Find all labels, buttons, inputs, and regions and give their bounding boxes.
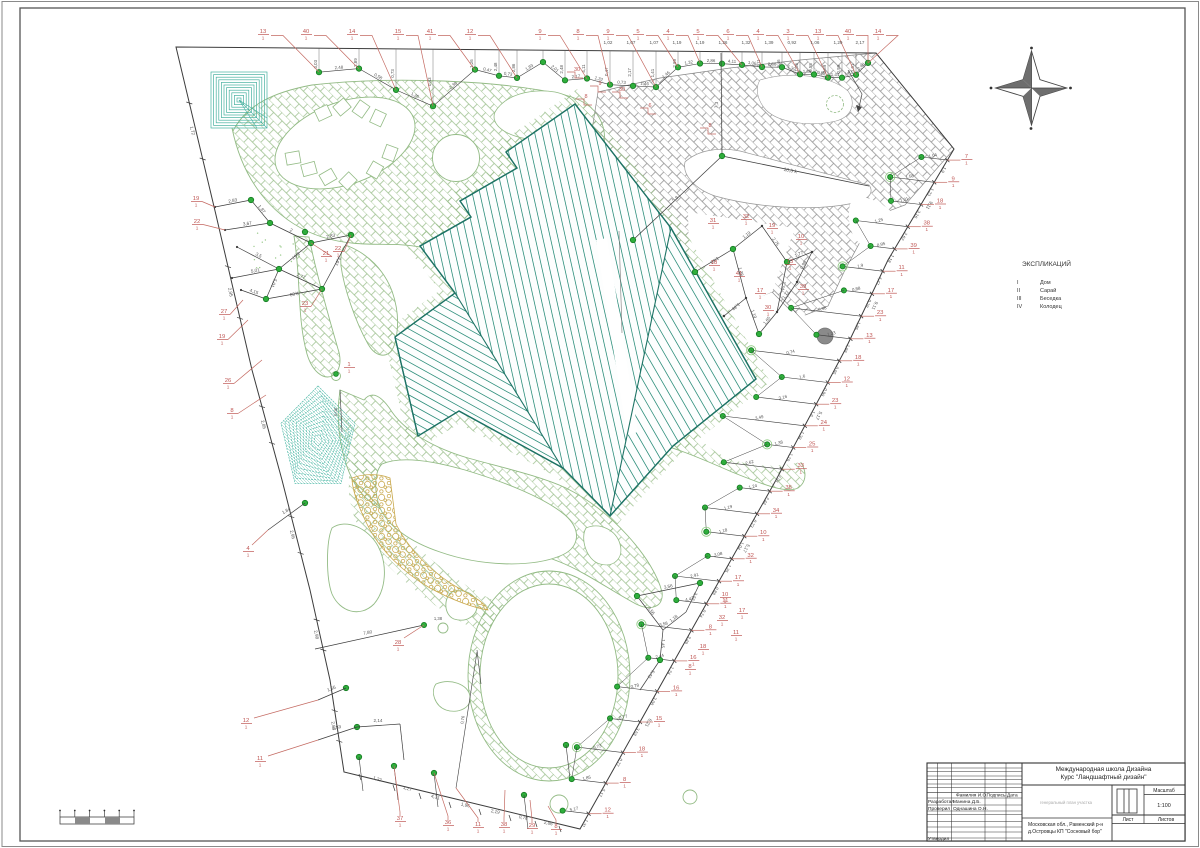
svg-text:Разработал: Разработал [928, 799, 954, 805]
svg-text:1: 1 [429, 36, 432, 41]
svg-text:1,39: 1,39 [803, 69, 812, 74]
svg-text:1: 1 [469, 36, 472, 41]
svg-text:Колодец: Колодец [1040, 304, 1063, 310]
svg-text:1: 1 [337, 253, 340, 258]
svg-text:1: 1 [709, 631, 712, 636]
svg-text:34: 34 [773, 508, 780, 514]
svg-text:12: 12 [243, 718, 250, 724]
svg-text:1: 1 [877, 36, 880, 41]
svg-text:19: 19 [219, 334, 226, 340]
svg-text:4,11: 4,11 [581, 64, 586, 73]
svg-text:24: 24 [821, 420, 828, 426]
svg-text:1: 1 [879, 317, 882, 322]
svg-text:1: 1 [667, 36, 670, 41]
svg-text:1: 1 [890, 294, 893, 299]
svg-text:ЭКСПЛИКАЦИЙ: ЭКСПЛИКАЦИЙ [1022, 259, 1071, 268]
svg-text:31: 31 [710, 218, 717, 224]
svg-text:1,41: 1,41 [831, 72, 840, 77]
svg-text:6,08: 6,08 [333, 407, 339, 416]
svg-text:Курс "Ландшафтный дизайн": Курс "Ландшафтный дизайн" [1061, 773, 1147, 781]
svg-text:25: 25 [809, 442, 816, 448]
svg-text:22: 22 [194, 219, 201, 225]
svg-text:1: 1 [223, 316, 226, 321]
svg-text:7: 7 [965, 154, 968, 160]
svg-text:1,06: 1,06 [748, 60, 758, 66]
svg-text:12: 12 [604, 808, 611, 814]
svg-text:0,73: 0,73 [390, 69, 395, 78]
svg-text:1: 1 [847, 36, 850, 41]
svg-text:1: 1 [397, 36, 400, 41]
svg-text:1: 1 [195, 203, 198, 208]
svg-text:Масштаб: Масштаб [1153, 788, 1175, 794]
svg-text:32: 32 [719, 615, 726, 621]
svg-text:14: 14 [349, 29, 356, 35]
svg-text:15: 15 [395, 29, 402, 35]
svg-text:2,17: 2,17 [627, 68, 632, 77]
svg-text:Дом: Дом [1040, 280, 1051, 286]
svg-text:1: 1 [227, 385, 230, 390]
svg-text:38: 38 [924, 221, 931, 227]
svg-text:18: 18 [711, 260, 718, 266]
svg-text:10: 10 [798, 234, 805, 240]
svg-text:Подпись: Подпись [987, 793, 1006, 799]
svg-text:1: 1 [721, 622, 724, 627]
svg-text:1,32: 1,32 [742, 40, 751, 45]
svg-text:9: 9 [952, 176, 955, 182]
svg-text:1: 1 [447, 827, 450, 832]
svg-text:Однашина О.Н.: Однашина О.Н. [953, 806, 988, 812]
svg-text:1: 1 [787, 492, 790, 497]
svg-text:11: 11 [733, 630, 739, 636]
svg-text:1: 1 [749, 559, 752, 564]
svg-text:2,17: 2,17 [571, 74, 580, 80]
svg-text:35: 35 [785, 485, 792, 491]
svg-text:2,17: 2,17 [856, 40, 865, 45]
svg-text:10: 10 [722, 592, 729, 598]
svg-text:1: 1 [245, 725, 248, 730]
svg-text:2,14: 2,14 [374, 718, 383, 723]
svg-text:41: 41 [427, 29, 434, 35]
svg-text:1,38: 1,38 [434, 616, 443, 621]
svg-text:1: 1 [399, 823, 402, 828]
svg-text:1: 1 [555, 831, 558, 836]
svg-text:1: 1 [757, 36, 760, 41]
svg-text:17: 17 [739, 608, 746, 614]
svg-text:30: 30 [574, 67, 580, 73]
svg-text:1,07: 1,07 [627, 40, 636, 45]
svg-text:Листов: Листов [1158, 817, 1175, 823]
svg-text:18: 18 [639, 747, 646, 753]
svg-text:III: III [1017, 296, 1022, 302]
svg-text:9: 9 [606, 29, 609, 35]
svg-text:1: 1 [477, 829, 480, 834]
svg-text:29: 29 [529, 823, 536, 829]
svg-text:1: 1 [692, 661, 695, 666]
svg-text:37: 37 [397, 816, 404, 822]
svg-text:Фамилия И.О.: Фамилия И.О. [956, 793, 988, 799]
svg-text:16: 16 [690, 655, 697, 661]
svg-text:1: 1 [577, 36, 580, 41]
svg-text:10: 10 [760, 530, 767, 536]
svg-text:28: 28 [395, 640, 402, 646]
svg-text:1: 1 [926, 227, 929, 232]
svg-text:1,26: 1,26 [719, 40, 728, 45]
svg-text:2,86: 2,86 [768, 62, 777, 67]
svg-text:8: 8 [584, 94, 587, 100]
svg-text:1: 1 [351, 36, 354, 41]
svg-text:0,73: 0,73 [617, 80, 626, 85]
svg-text:40: 40 [303, 29, 310, 35]
svg-text:1: 1 [767, 312, 770, 317]
svg-text:17: 17 [735, 575, 742, 581]
svg-text:19: 19 [193, 196, 200, 202]
svg-text:6: 6 [648, 103, 651, 109]
svg-text:1: 1 [912, 249, 915, 254]
svg-text:11: 11 [257, 756, 263, 762]
svg-text:13: 13 [787, 259, 794, 265]
svg-text:1: 1 [965, 161, 968, 166]
svg-text:Беседка: Беседка [1040, 296, 1062, 302]
svg-text:1: 1 [231, 415, 234, 420]
svg-text:1: 1 [759, 295, 762, 300]
svg-text:1: 1 [397, 647, 400, 652]
svg-text:27: 27 [221, 309, 228, 315]
svg-text:1,41: 1,41 [650, 68, 655, 77]
svg-text:17: 17 [888, 288, 895, 294]
svg-text:9: 9 [538, 29, 541, 35]
svg-text:1: 1 [262, 36, 265, 41]
svg-text:1: 1 [771, 230, 774, 235]
svg-text:1: 1 [606, 814, 609, 819]
svg-text:30: 30 [619, 87, 625, 93]
svg-text:1: 1 [712, 225, 715, 230]
svg-text:1: 1 [811, 448, 814, 453]
svg-text:1: 1 [325, 258, 328, 263]
svg-text:2,86: 2,86 [707, 58, 716, 63]
svg-text:1: 1 [834, 405, 837, 410]
svg-text:1: 1 [900, 272, 903, 277]
svg-text:1: 1 [846, 383, 849, 388]
svg-text:38: 38 [501, 822, 508, 828]
svg-text:1,39: 1,39 [765, 40, 774, 45]
svg-text:1: 1 [735, 637, 738, 642]
svg-text:Сарай: Сарай [1040, 287, 1056, 294]
svg-text:4,11: 4,11 [728, 59, 737, 65]
svg-text:1: 1 [247, 553, 250, 558]
svg-text:1,07: 1,07 [650, 40, 659, 45]
svg-text:1: 1 [939, 205, 942, 210]
svg-text:1,19: 1,19 [673, 40, 682, 45]
svg-text:1: 1 [738, 278, 741, 283]
svg-text:1: 1 [503, 829, 506, 834]
svg-text:1: 1 [762, 537, 765, 542]
svg-text:1,06: 1,06 [811, 40, 820, 45]
svg-text:Манина Д.Б.: Манина Д.Б. [953, 799, 981, 805]
svg-text:15: 15 [656, 716, 663, 722]
svg-text:1: 1 [304, 308, 307, 313]
svg-text:Утвердил: Утвердил [928, 836, 949, 842]
svg-text:7,3: 7,3 [714, 101, 719, 108]
svg-text:1: 1 [702, 651, 705, 656]
svg-text:1: 1 [737, 582, 740, 587]
svg-text:1: 1 [347, 362, 350, 368]
svg-text:12: 12 [844, 377, 851, 383]
svg-text:1: 1 [637, 36, 640, 41]
svg-text:1: 1 [658, 723, 661, 728]
svg-text:30: 30 [765, 305, 772, 311]
svg-text:1: 1 [348, 369, 351, 374]
svg-text:1: 1 [802, 291, 805, 296]
svg-text:1: 1 [789, 266, 792, 271]
svg-text:32: 32 [743, 214, 750, 220]
svg-text:14: 14 [875, 29, 882, 35]
svg-text:11: 11 [475, 822, 481, 828]
svg-text:1,02: 1,02 [604, 40, 613, 45]
svg-text:23: 23 [877, 310, 884, 316]
svg-text:1,29: 1,29 [834, 40, 843, 45]
svg-text:1: 1 [745, 221, 748, 226]
svg-text:41: 41 [736, 271, 743, 277]
svg-text:генеральный план участка: генеральный план участка [1040, 800, 1093, 805]
svg-text:26: 26 [225, 378, 232, 384]
svg-text:1: 1 [259, 763, 262, 768]
svg-text:0,92: 0,92 [788, 40, 797, 45]
svg-text:IV: IV [1017, 304, 1023, 310]
svg-text:1: 1 [623, 784, 626, 789]
svg-text:23: 23 [302, 301, 309, 307]
svg-text:1: 1 [775, 514, 778, 519]
svg-text:1: 1 [641, 753, 644, 758]
svg-text:Международная школа Дизайна: Международная школа Дизайна [1056, 765, 1152, 773]
svg-text:1:100: 1:100 [1157, 803, 1171, 809]
svg-text:18: 18 [855, 355, 862, 361]
svg-text:12: 12 [467, 29, 474, 35]
svg-text:22: 22 [335, 246, 342, 252]
svg-text:1,45: 1,45 [660, 639, 666, 649]
svg-text:13: 13 [260, 29, 267, 35]
svg-text:39: 39 [910, 243, 917, 249]
svg-text:1: 1 [857, 361, 860, 366]
svg-text:1: 1 [800, 241, 803, 246]
svg-text:д.Островцы КП "Сосновый бор": д.Островцы КП "Сосновый бор" [1028, 828, 1102, 835]
svg-text:II: II [1017, 288, 1021, 294]
svg-text:2,48: 2,48 [334, 64, 344, 70]
svg-text:39: 39 [800, 284, 807, 290]
svg-text:1: 1 [724, 604, 727, 609]
svg-text:11: 11 [899, 265, 905, 271]
svg-text:18: 18 [700, 644, 707, 650]
svg-text:1: 1 [952, 183, 955, 188]
svg-text:1: 1 [868, 339, 871, 344]
svg-text:16: 16 [673, 685, 680, 691]
svg-text:Московская обл., Раменский р-н: Московская обл., Раменский р-н [1028, 821, 1103, 828]
svg-text:1: 1 [221, 341, 224, 346]
svg-text:18: 18 [937, 199, 944, 205]
svg-text:Проверил: Проверил [928, 806, 950, 812]
svg-text:1: 1 [713, 267, 716, 272]
svg-text:1: 1 [800, 470, 803, 475]
svg-text:9: 9 [598, 81, 601, 87]
svg-text:17: 17 [757, 288, 764, 294]
svg-text:36: 36 [445, 820, 452, 826]
svg-text:1: 1 [741, 615, 744, 620]
svg-text:1: 1 [675, 692, 678, 697]
svg-text:23: 23 [832, 398, 839, 404]
svg-text:1: 1 [196, 226, 199, 231]
svg-text:1,19: 1,19 [696, 40, 705, 45]
svg-text:32: 32 [747, 553, 754, 559]
svg-text:1: 1 [689, 671, 692, 676]
svg-text:1: 1 [823, 426, 826, 431]
svg-text:1: 1 [305, 36, 308, 41]
svg-text:1,46: 1,46 [640, 81, 649, 86]
svg-text:2,48: 2,48 [493, 62, 498, 71]
svg-text:19: 19 [769, 223, 776, 229]
svg-text:1: 1 [724, 599, 727, 604]
svg-text:0,73: 0,73 [504, 71, 514, 77]
svg-text:40: 40 [845, 29, 852, 35]
svg-text:1: 1 [531, 830, 534, 835]
svg-text:8: 8 [708, 123, 711, 129]
svg-text:13: 13 [866, 333, 873, 339]
svg-text:Лист: Лист [1123, 817, 1135, 823]
svg-text:33: 33 [798, 463, 805, 469]
svg-text:1: 1 [539, 36, 542, 41]
svg-text:13: 13 [815, 29, 822, 35]
svg-text:Дата: Дата [1007, 793, 1018, 799]
